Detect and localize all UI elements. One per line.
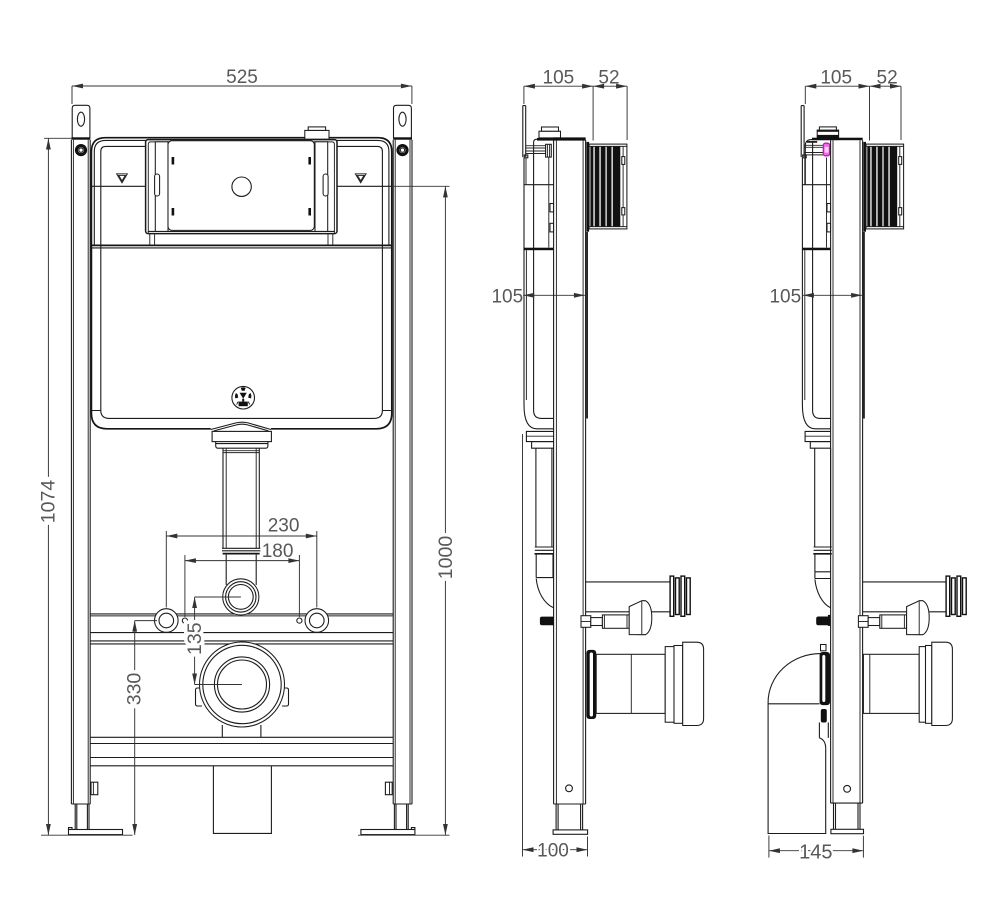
svg-text:105: 105 xyxy=(491,286,523,307)
svg-text:100: 100 xyxy=(537,841,569,862)
svg-text:135: 135 xyxy=(184,622,206,655)
svg-text:525: 525 xyxy=(226,67,258,88)
svg-text:330: 330 xyxy=(123,673,145,706)
svg-text:180: 180 xyxy=(262,541,294,562)
svg-text:1074: 1074 xyxy=(38,480,60,524)
svg-text:105: 105 xyxy=(820,68,852,89)
svg-text:1000: 1000 xyxy=(435,536,457,580)
svg-text:105: 105 xyxy=(543,68,575,89)
svg-text:105: 105 xyxy=(769,286,801,307)
svg-text:145: 145 xyxy=(799,841,832,863)
svg-text:230: 230 xyxy=(268,516,300,537)
